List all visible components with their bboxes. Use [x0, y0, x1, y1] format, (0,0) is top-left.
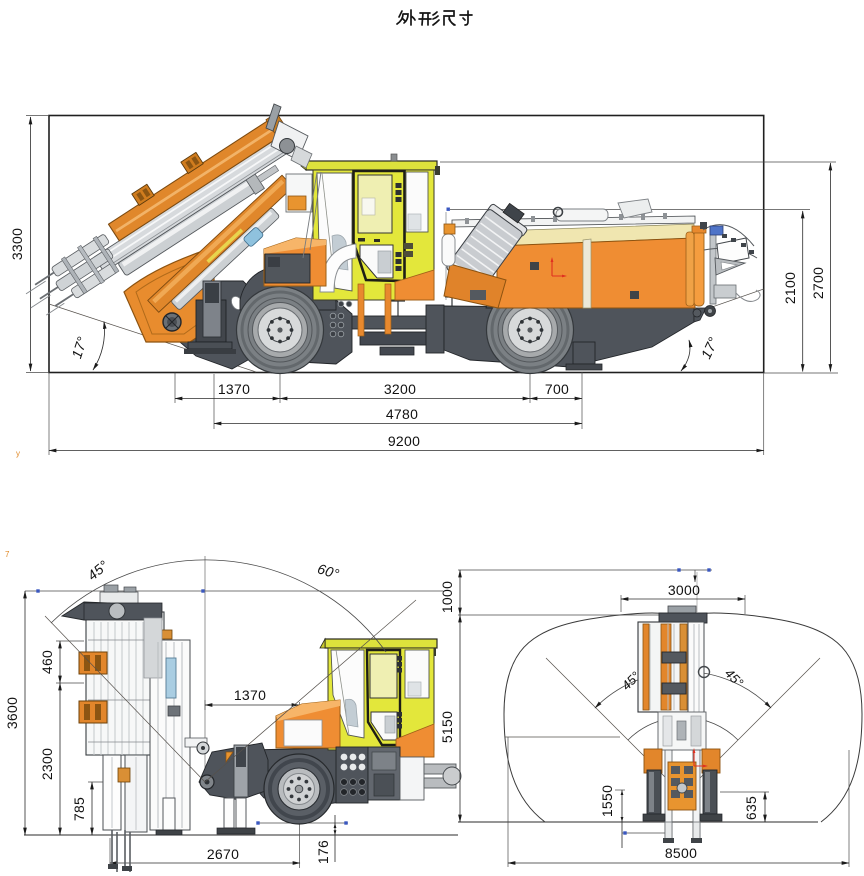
- svg-text:635: 635: [743, 796, 759, 820]
- svg-text:2100: 2100: [782, 272, 798, 304]
- svg-text:7: 7: [5, 550, 10, 559]
- svg-text:176: 176: [315, 840, 331, 864]
- svg-text:3200: 3200: [384, 381, 416, 397]
- svg-text:1370: 1370: [234, 687, 266, 703]
- svg-text:1000: 1000: [439, 581, 455, 613]
- svg-text:8500: 8500: [665, 845, 697, 861]
- svg-text:2670: 2670: [207, 846, 239, 862]
- svg-text:700: 700: [545, 381, 569, 397]
- svg-text:y: y: [16, 449, 20, 458]
- svg-text:460: 460: [39, 650, 55, 674]
- svg-text:9200: 9200: [388, 433, 420, 449]
- svg-text:2300: 2300: [39, 748, 55, 780]
- svg-text:2700: 2700: [810, 267, 826, 299]
- svg-text:3300: 3300: [9, 228, 25, 260]
- svg-text:1550: 1550: [599, 785, 615, 817]
- svg-text:4780: 4780: [386, 406, 418, 422]
- svg-text:5150: 5150: [439, 711, 455, 743]
- svg-text:3000: 3000: [668, 582, 700, 598]
- svg-text:1370: 1370: [218, 381, 250, 397]
- svg-text:785: 785: [71, 797, 87, 821]
- svg-text:3600: 3600: [4, 697, 20, 729]
